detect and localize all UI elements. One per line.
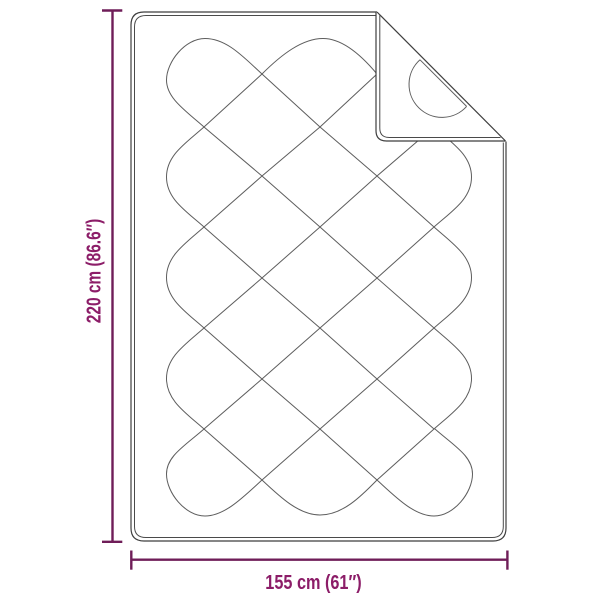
- svg-text:220 cm (86.6″): 220 cm (86.6″): [84, 219, 106, 324]
- svg-text:155 cm (61″): 155 cm (61″): [265, 572, 361, 594]
